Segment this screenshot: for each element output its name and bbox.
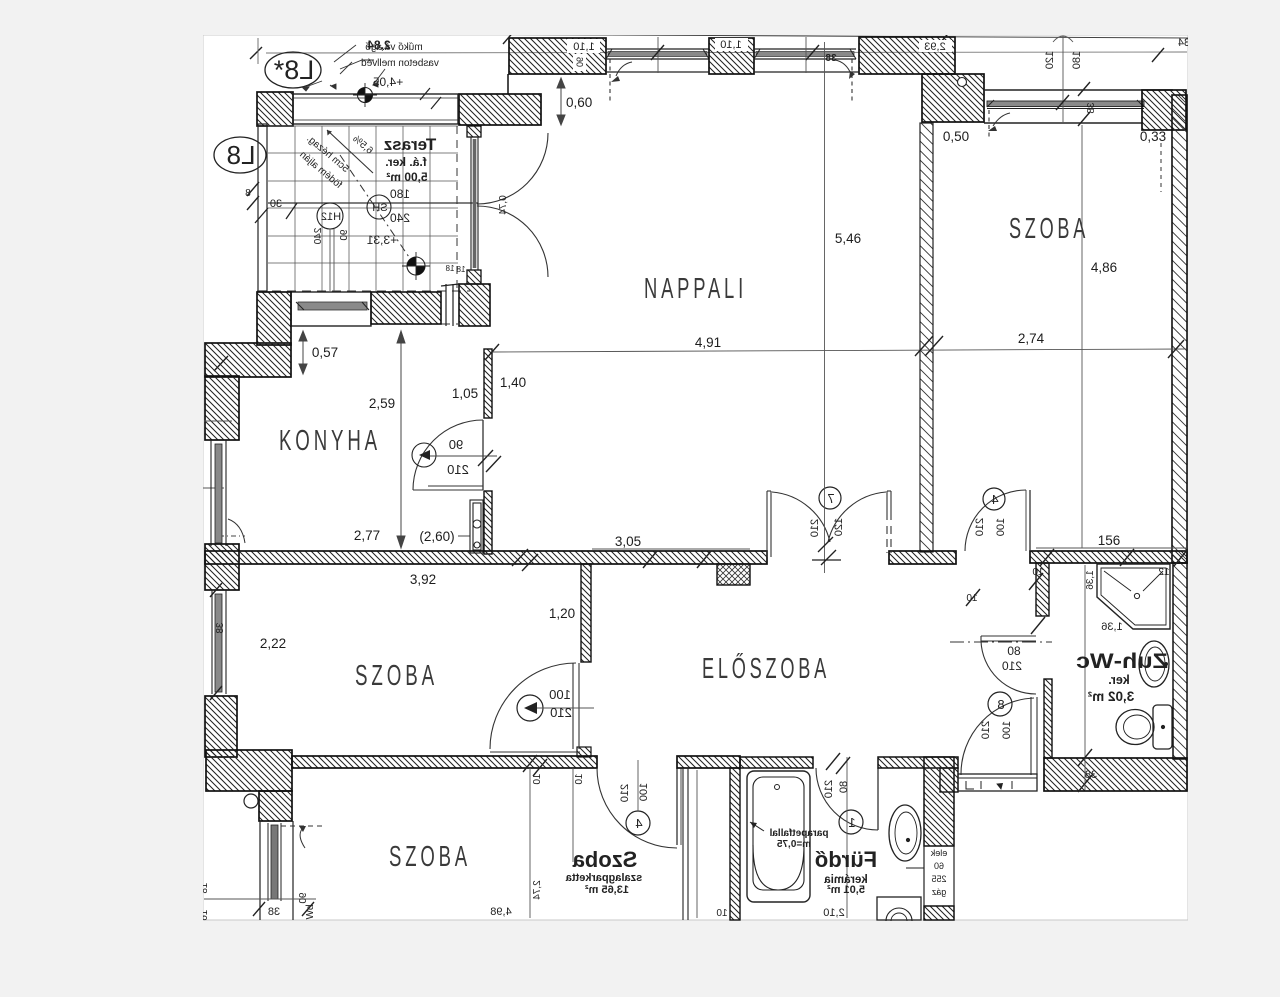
- svg-text:0,50: 0,50: [943, 129, 969, 144]
- svg-text:90: 90: [339, 229, 350, 241]
- svg-text:120: 120: [833, 518, 845, 536]
- svg-text:L8*: L8*: [273, 55, 314, 85]
- svg-text:100: 100: [995, 518, 1007, 536]
- svg-text:0,57: 0,57: [312, 345, 338, 360]
- svg-text:10: 10: [966, 593, 978, 604]
- svg-text:18: 18: [456, 265, 465, 274]
- svg-text:10: 10: [574, 773, 585, 785]
- svg-text:1: 1: [848, 815, 855, 830]
- svg-text:1,05: 1,05: [452, 386, 478, 401]
- svg-text:240: 240: [313, 228, 324, 245]
- svg-text:vasbeton mellvéd: vasbeton mellvéd: [361, 58, 439, 69]
- svg-text:210: 210: [619, 784, 631, 802]
- svg-text:3,92: 3,92: [410, 572, 436, 587]
- svg-text:2,59: 2,59: [369, 396, 395, 411]
- svg-text:180: 180: [1071, 51, 1083, 69]
- svg-text:SZOBA: SZOBA: [389, 841, 471, 873]
- svg-text:10: 10: [1032, 567, 1044, 578]
- svg-text:0,60: 0,60: [566, 95, 592, 110]
- svg-text:210: 210: [550, 705, 572, 720]
- svg-text:38: 38: [1085, 769, 1097, 781]
- svg-text:210: 210: [809, 519, 821, 537]
- svg-text:38: 38: [268, 906, 280, 918]
- svg-text:255: 255: [931, 874, 946, 884]
- svg-text:90: 90: [298, 892, 309, 904]
- svg-text:ker.: ker.: [1108, 673, 1130, 687]
- svg-text:+3,31: +3,31: [366, 233, 397, 247]
- svg-text:2,22: 2,22: [260, 636, 286, 651]
- svg-text:2,10: 2,10: [823, 907, 844, 919]
- svg-text:NAPPALI: NAPPALI: [644, 273, 747, 305]
- svg-text:2,77: 2,77: [354, 528, 380, 543]
- svg-text:f.á. ker.: f.á. ker.: [385, 155, 426, 169]
- svg-text:H12: H12: [321, 211, 341, 223]
- svg-text:2,74: 2,74: [532, 880, 543, 900]
- svg-text:4,91: 4,91: [695, 335, 721, 350]
- svg-text:Fürdő: Fürdő: [815, 847, 877, 872]
- svg-text:1,36: 1,36: [1101, 621, 1122, 633]
- svg-text:240: 240: [390, 211, 410, 225]
- svg-text:13,65 m²: 13,65 m²: [585, 884, 629, 896]
- svg-text:5,00 m²: 5,00 m²: [386, 170, 427, 184]
- svg-text:5,46: 5,46: [835, 231, 861, 246]
- svg-text:10: 10: [532, 773, 543, 785]
- svg-text:210: 210: [823, 780, 835, 798]
- svg-text:m=0,75: m=0,75: [776, 839, 811, 850]
- svg-text:szalagparketta: szalagparketta: [565, 872, 642, 884]
- svg-text:100: 100: [1001, 721, 1013, 739]
- svg-text:80: 80: [838, 781, 850, 793]
- svg-text:Terasz: Terasz: [384, 135, 437, 154]
- svg-text:210: 210: [974, 518, 986, 536]
- svg-text:(2,60): (2,60): [419, 529, 454, 544]
- svg-text:4: 4: [991, 492, 998, 507]
- svg-text:38: 38: [825, 53, 837, 64]
- svg-text:60: 60: [934, 861, 944, 871]
- svg-text:210: 210: [980, 721, 992, 739]
- svg-text:180: 180: [390, 187, 410, 201]
- svg-text:100: 100: [638, 783, 650, 801]
- svg-text:3,02 m²: 3,02 m²: [1087, 689, 1134, 704]
- svg-text:120: 120: [1044, 51, 1056, 69]
- svg-text:5,01 m²: 5,01 m²: [827, 884, 865, 896]
- svg-text:SZOBA: SZOBA: [355, 660, 438, 692]
- svg-text:0,33: 0,33: [1140, 129, 1166, 144]
- svg-text:1,10: 1,10: [573, 41, 594, 53]
- svg-text:38: 38: [215, 622, 226, 634]
- svg-text:8: 8: [997, 697, 1004, 712]
- svg-text:10: 10: [716, 908, 728, 919]
- svg-text:2,84: 2,84: [367, 38, 391, 52]
- svg-text:12: 12: [1158, 567, 1170, 578]
- svg-text:Szoba: Szoba: [572, 847, 638, 872]
- svg-text:156: 156: [1098, 533, 1121, 548]
- svg-text:100: 100: [549, 687, 571, 702]
- svg-text:L8: L8: [227, 140, 256, 170]
- svg-text:8: 8: [245, 188, 251, 199]
- svg-text:SZOBA: SZOBA: [1009, 213, 1089, 245]
- svg-text:80: 80: [1007, 644, 1021, 658]
- svg-text:SH: SH: [372, 202, 387, 214]
- svg-text:KONYHA: KONYHA: [279, 425, 381, 457]
- svg-text:210: 210: [447, 462, 469, 477]
- svg-text:4: 4: [635, 816, 642, 831]
- svg-text:Zuh-Wc: Zuh-Wc: [1076, 650, 1168, 673]
- svg-text:90: 90: [575, 57, 585, 67]
- svg-text:gáz: gáz: [931, 887, 946, 897]
- svg-text:18: 18: [445, 264, 454, 273]
- svg-text:2,93: 2,93: [924, 41, 945, 53]
- svg-text:+4,05: +4,05: [372, 75, 403, 89]
- svg-text:2,74: 2,74: [1018, 331, 1045, 346]
- svg-text:4,98: 4,98: [490, 906, 511, 918]
- svg-text:3,05: 3,05: [615, 534, 641, 549]
- svg-text:7: 7: [827, 491, 834, 506]
- svg-text:4,86: 4,86: [1091, 260, 1117, 275]
- svg-text:1,36: 1,36: [1085, 570, 1096, 590]
- svg-text:parapetfallal: parapetfallal: [769, 828, 828, 839]
- svg-text:30: 30: [270, 198, 282, 210]
- svg-text:0,74: 0,74: [498, 195, 509, 215]
- svg-text:90: 90: [449, 437, 463, 452]
- svg-text:38: 38: [1086, 102, 1097, 114]
- svg-text:ELŐSZOBA: ELŐSZOBA: [702, 652, 830, 685]
- svg-text:210: 210: [1002, 659, 1022, 673]
- svg-text:1,20: 1,20: [549, 606, 575, 621]
- svg-text:bW: bW: [305, 905, 316, 921]
- svg-text:elek: elek: [930, 848, 947, 858]
- svg-text:1,40: 1,40: [500, 375, 526, 390]
- svg-text:1,10: 1,10: [720, 39, 741, 51]
